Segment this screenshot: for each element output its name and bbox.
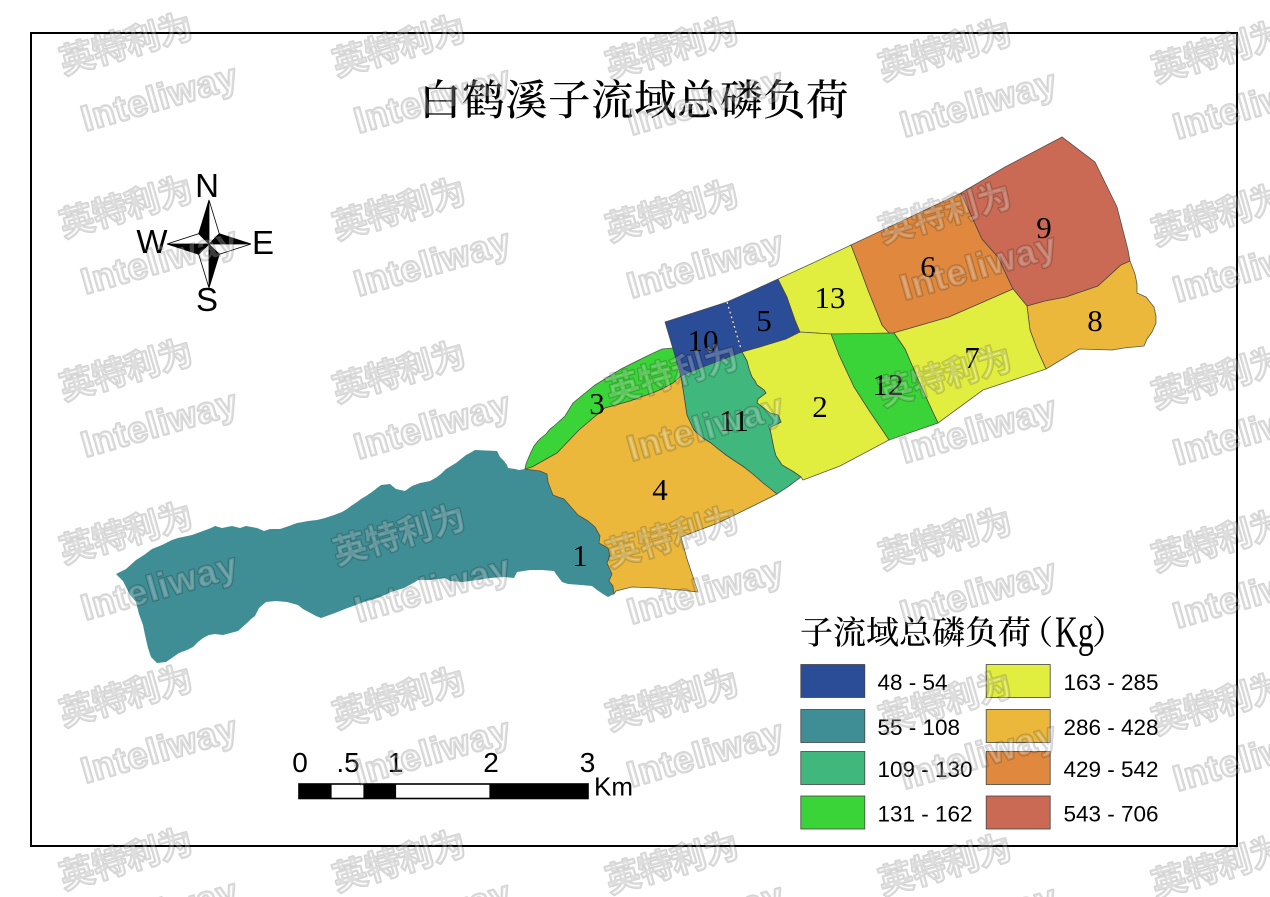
svg-text:13: 13 [815,280,846,315]
svg-text:5: 5 [756,303,772,338]
svg-text:1: 1 [572,538,588,573]
svg-text:4: 4 [652,472,668,507]
svg-text:Km: Km [594,772,633,802]
svg-text:543 - 706: 543 - 706 [1064,802,1159,827]
svg-text:429 - 542: 429 - 542 [1064,757,1159,782]
svg-text:0: 0 [292,747,308,778]
svg-text:E: E [252,224,274,261]
svg-text:8: 8 [1087,303,1103,338]
svg-text:286 - 428: 286 - 428 [1064,715,1159,740]
svg-text:131 - 162: 131 - 162 [878,802,973,827]
svg-text:Kg: Kg [1055,609,1094,657]
svg-text:N: N [195,167,219,204]
svg-text:163 - 285: 163 - 285 [1064,670,1159,695]
svg-text:3: 3 [580,747,596,778]
svg-text:3: 3 [589,386,605,421]
svg-text:2: 2 [812,389,828,424]
svg-text:S: S [196,281,218,318]
